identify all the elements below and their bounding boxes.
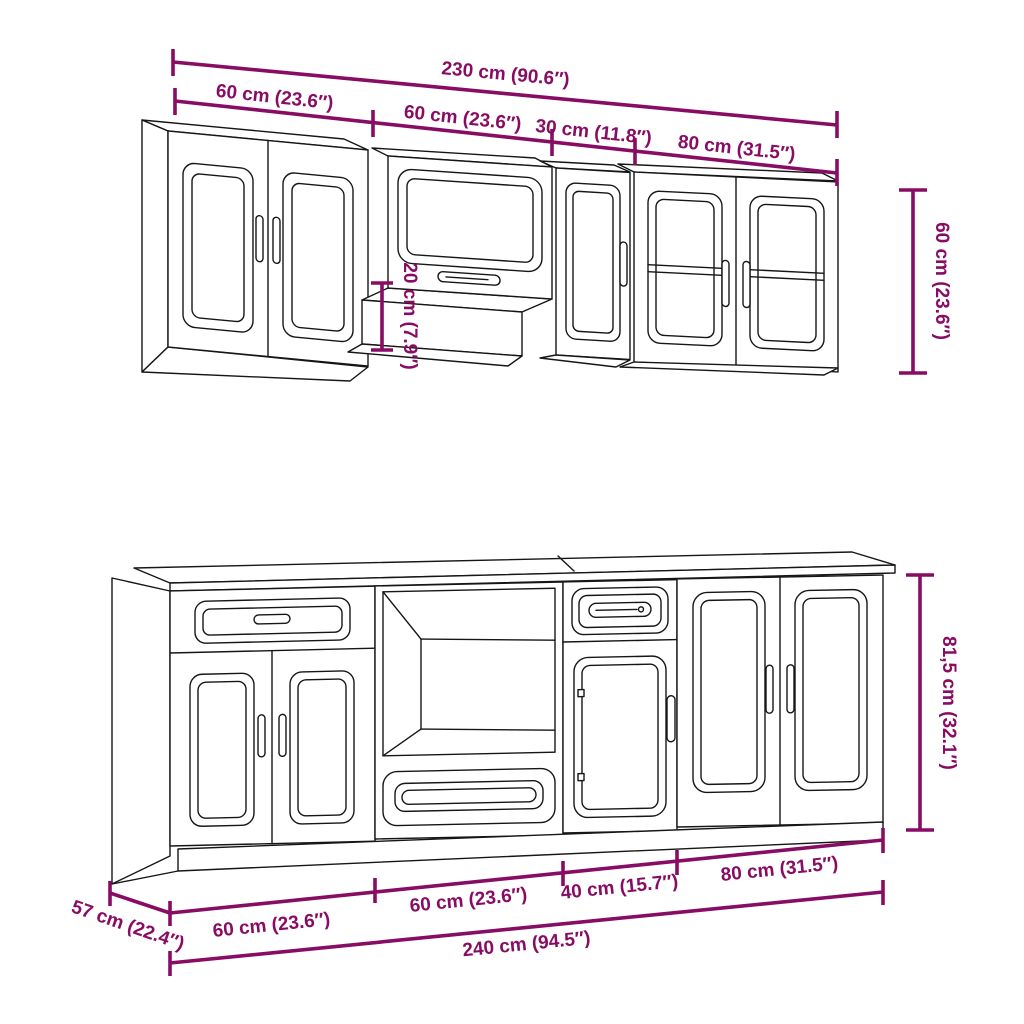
door-handle (787, 665, 794, 713)
door-handle (766, 665, 773, 713)
door-handle (743, 261, 750, 307)
dim-label: 60 cm (23.6″) (215, 81, 334, 115)
hinge-mark (578, 690, 584, 697)
cabinet-front (168, 131, 368, 366)
door-handle (722, 260, 729, 306)
wall-cabinet-60-flip-door (348, 148, 552, 366)
diagram-canvas: 230 cm (90.6″) 60 cm (23.6″) 60 cm (23.6… (0, 0, 1024, 1024)
dim-label: 60 cm (23.6″) (931, 222, 952, 340)
dim-label: 60 cm (23.6″) (212, 909, 331, 942)
base-cabinet-60-oven-open (375, 582, 563, 839)
dim-wall-height: 60 cm (23.6″) (899, 190, 952, 373)
dim-label: 20 cm (7.9″) (399, 262, 420, 369)
wall-cabinets (142, 120, 838, 381)
dim-label: 60 cm (23.6″) (403, 102, 522, 136)
kitchen-cabinet-dimension-diagram: 230 cm (90.6″) 60 cm (23.6″) 60 cm (23.6… (0, 0, 1024, 1024)
door-handle (620, 242, 627, 286)
door-handle (256, 215, 263, 262)
dim-label: 230 cm (90.6″) (441, 58, 571, 91)
cabinet-front (556, 168, 630, 359)
cabinet-front (634, 172, 838, 372)
dim-label: 60 cm (23.6″) (409, 884, 528, 917)
door-handle (273, 217, 280, 264)
hinge-mark (578, 774, 584, 781)
dim-label: 81,5 cm (32.1″) (938, 636, 959, 770)
cabinet-side-face (142, 120, 168, 372)
base-side-panel (112, 578, 170, 884)
dim-base-height: 81,5 cm (32.1″) (906, 575, 959, 830)
door-handle (258, 715, 265, 757)
base-cabinet-40-drawer-door (563, 580, 677, 833)
wall-cabinet-30 (540, 161, 630, 367)
dim-label: 40 cm (15.7″) (560, 871, 679, 904)
door-handle (279, 714, 286, 756)
base-cabinet-60-drawer-doors (170, 586, 375, 846)
door-handle (667, 696, 675, 742)
wall-cabinet-60-double-door (142, 120, 368, 381)
wall-cabinet-80-double-door (618, 164, 838, 375)
dim-label: 80 cm (31.5″) (720, 853, 839, 886)
base-cabinets (112, 552, 895, 884)
drawer-handle (254, 614, 290, 624)
base-cabinet-80-double-door (677, 575, 883, 827)
